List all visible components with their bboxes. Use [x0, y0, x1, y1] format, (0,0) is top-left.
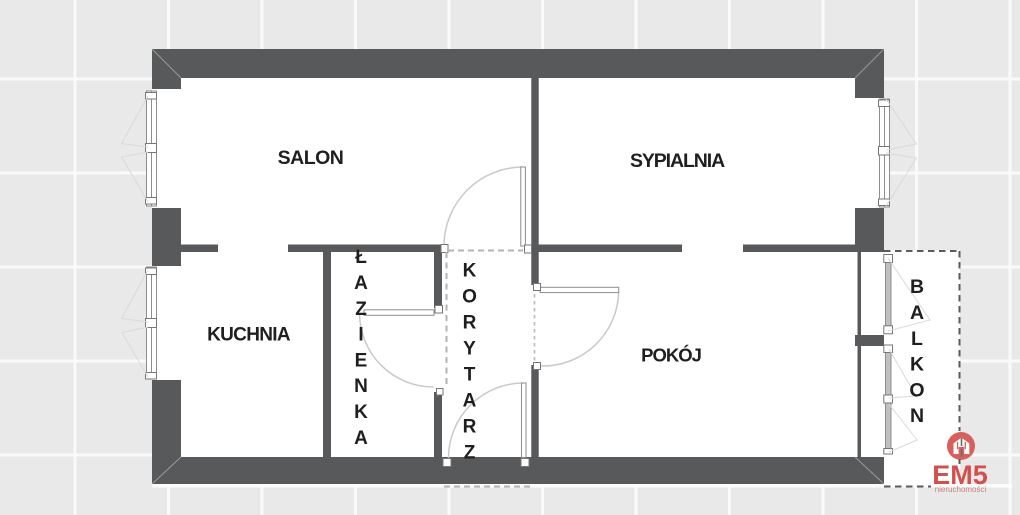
svg-text:K: K [463, 261, 477, 282]
svg-text:A: A [910, 302, 924, 324]
svg-text:SYPIALNIA: SYPIALNIA [630, 150, 725, 172]
svg-text:SALON: SALON [278, 147, 344, 169]
svg-text:POKÓJ: POKÓJ [641, 345, 701, 366]
svg-text:Z: Z [464, 442, 476, 463]
svg-text:O: O [909, 379, 924, 401]
svg-text:E: E [355, 350, 368, 371]
svg-text:A: A [354, 273, 368, 294]
svg-text:I: I [358, 325, 363, 346]
svg-text:N: N [910, 405, 924, 427]
svg-text:A: A [463, 390, 477, 411]
svg-text:KUCHNIA: KUCHNIA [207, 325, 291, 346]
svg-text:nieruchomości: nieruchomości [935, 485, 987, 494]
svg-text:O: O [462, 287, 477, 308]
svg-text:N: N [354, 376, 368, 397]
svg-text:A: A [354, 428, 368, 449]
svg-text:K: K [354, 402, 368, 423]
svg-text:Z: Z [355, 299, 367, 320]
svg-text:B: B [910, 276, 924, 298]
svg-text:Ł: Ł [355, 247, 367, 268]
svg-text:Y: Y [463, 339, 476, 360]
svg-text:R: R [463, 416, 477, 437]
svg-text:R: R [463, 313, 477, 334]
svg-text:L: L [911, 328, 923, 350]
svg-text:T: T [464, 365, 476, 386]
svg-text:K: K [910, 354, 924, 376]
